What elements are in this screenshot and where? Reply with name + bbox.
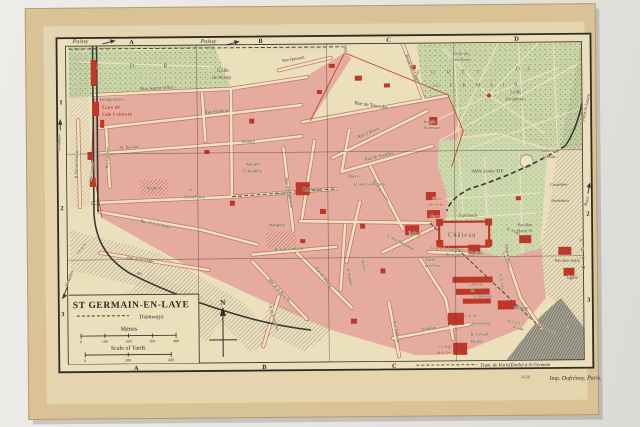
tramways-label: Tramways	[139, 314, 164, 320]
map-label: F O R	[95, 63, 181, 70]
tram-caption: Tram. de Paris(Étoile) à St Germain	[480, 362, 551, 369]
map-label: Ancien	[246, 163, 260, 168]
yards-label: Scale of Yards	[111, 345, 146, 352]
map-label: Château	[448, 232, 476, 239]
metres-tick: 300	[149, 338, 155, 343]
map-label: de	[471, 288, 475, 293]
map-label: la Grille	[543, 155, 556, 159]
yards-tick: 200	[125, 358, 131, 363]
map-label: Cas. de	[465, 313, 477, 318]
college-filles-block	[453, 343, 467, 355]
map-label: Luxembourg	[470, 321, 491, 326]
map-photo: ABCDABC12323 ST GERMAIN-EN-LAYE Tramways…	[0, 0, 640, 427]
map-label: Manège	[514, 305, 528, 310]
map-label: Collège	[438, 344, 452, 349]
plate-number: 4-24	[521, 374, 530, 379]
map-label: Étoile	[343, 45, 348, 55]
map-label: Hospice	[269, 223, 285, 228]
map-label: R. Giraud-	[471, 332, 490, 337]
map-label: Église	[408, 231, 421, 237]
map-label: de Ville	[429, 202, 443, 207]
map-label: du Pecq et	[542, 149, 559, 153]
metres-tick: 400	[173, 338, 179, 343]
map-label: Esplanade	[457, 213, 477, 218]
grid-number: 2	[60, 205, 63, 212]
yards-tick: 0	[84, 358, 86, 363]
map-label: E	[565, 325, 569, 330]
map-label: Grammont	[473, 293, 493, 298]
map-label: Pavillon Sully	[555, 258, 581, 263]
metres-label: Mètres	[121, 327, 138, 333]
north-label: N	[220, 298, 226, 307]
grid-number: 3	[587, 297, 590, 304]
map-label: Étoile des	[454, 51, 470, 56]
map-label: Ascenseur	[551, 198, 570, 203]
pavillon-henri-iv-block	[519, 235, 531, 243]
map-label: Pavillon	[518, 222, 533, 227]
map-label: Gare	[429, 214, 441, 220]
map-label: Gare de	[102, 105, 120, 111]
map-label: Grille	[511, 89, 522, 94]
map-title: ST GERMAIN-EN-LAYE	[73, 300, 190, 311]
metres-tick: 100	[102, 339, 108, 344]
map-label: Poissy	[72, 39, 89, 45]
printer-credit: Imp. Dufrénoy, Paris.	[548, 375, 601, 382]
map-label: Poissy	[200, 39, 217, 45]
map-label: E	[580, 247, 584, 252]
grid-letter: C	[392, 363, 397, 370]
map-label: Cimetière	[550, 182, 567, 187]
map-label: L	[562, 316, 566, 321]
metres-tick: 0	[80, 339, 82, 344]
map-label: Temple	[423, 119, 436, 124]
map-label: Thiers	[347, 174, 359, 179]
grid-number: 2	[586, 211, 589, 218]
metres-tick: 200	[126, 339, 132, 344]
map-label: Protestant	[424, 125, 442, 130]
map-label: Neuf Routes	[452, 58, 472, 62]
grid-letter: A	[129, 39, 134, 46]
map-label: Théâtre	[469, 252, 484, 257]
map-label: Grille	[217, 69, 229, 74]
map-label: de Filles	[437, 350, 452, 355]
grid-letter: D	[514, 36, 519, 43]
map-label: Abattoir	[146, 185, 162, 190]
map-label: R. Bernard Palissy	[74, 150, 79, 179]
map-label: Cimetière	[243, 170, 262, 175]
map-label: Caserne	[469, 282, 483, 287]
map-label: Église	[567, 275, 578, 280]
grid-number: 3	[61, 311, 64, 318]
map-label: A Mantes	[56, 134, 61, 152]
legend-box: ST GERMAIN-EN-LAYE Tramways Mètres 01002…	[69, 294, 200, 364]
paper-sheet: ABCDABC12323 ST GERMAIN-EN-LAYE Tramways…	[25, 4, 603, 425]
map-label: D E	[516, 66, 534, 72]
map-label: Pereire	[242, 138, 255, 144]
map-label: Allée Louis XIV	[471, 169, 505, 174]
pavillon-sully-block	[558, 247, 571, 255]
map-label: P	[579, 238, 583, 243]
grid-letter: A	[134, 365, 139, 372]
map-label: Collège	[302, 187, 319, 193]
map-label: Berteaux	[446, 252, 462, 257]
map-label: Salle	[426, 257, 435, 262]
map-label: de Poissy	[212, 76, 232, 81]
map-label: des Fêtes	[425, 263, 441, 268]
map-label: Porte(piétons)	[100, 97, 125, 102]
map-label: G E R M A I N	[436, 82, 521, 89]
map-label: Teulon	[470, 339, 483, 344]
grid-number: 1	[59, 99, 62, 106]
map-label: Pl.	[189, 188, 193, 192]
map-label: Ru	[136, 271, 141, 276]
map-label: Dauphine	[506, 96, 524, 101]
map-label: Gde Ceinture	[102, 112, 133, 118]
yards-tick: 400	[168, 357, 174, 362]
grid-letter: C	[386, 37, 391, 44]
map-label: Hôtel	[432, 196, 443, 201]
map-label: Léon Passy	[184, 194, 206, 199]
